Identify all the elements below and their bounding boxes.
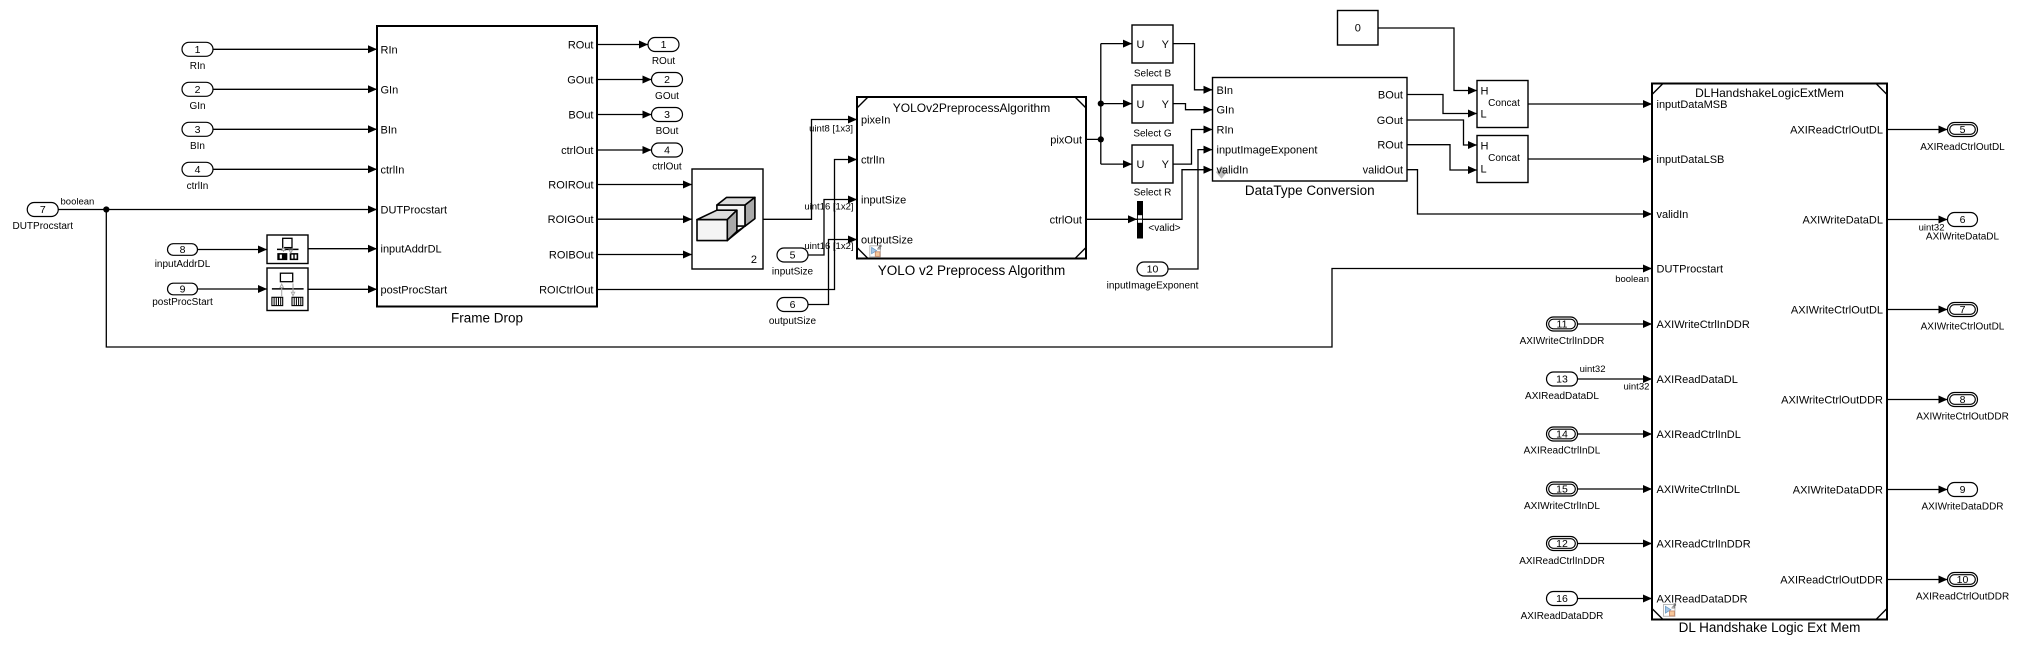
svg-text:8: 8 bbox=[180, 244, 186, 256]
svg-text:uint32: uint32 bbox=[1919, 223, 1945, 234]
svg-text:GIn: GIn bbox=[1217, 105, 1235, 117]
svg-text:ROIBOut: ROIBOut bbox=[549, 250, 594, 262]
svg-text:Y: Y bbox=[1162, 159, 1170, 171]
svg-text:uint16 [1x2]: uint16 [1x2] bbox=[804, 241, 853, 252]
svg-text:uint8 [1x3]: uint8 [1x3] bbox=[809, 124, 853, 135]
svg-text:boolean: boolean bbox=[61, 197, 95, 208]
svg-text:DLHandshakeLogicExtMem: DLHandshakeLogicExtMem bbox=[1695, 86, 1844, 100]
svg-text:4: 4 bbox=[195, 164, 201, 176]
svg-text:DUTProcstart: DUTProcstart bbox=[12, 221, 73, 232]
svg-text:inputAddrDL: inputAddrDL bbox=[381, 244, 442, 256]
svg-text:H: H bbox=[1481, 86, 1489, 98]
svg-text:BIn: BIn bbox=[381, 124, 398, 136]
svg-text:AXIWriteCtrlInDDR: AXIWriteCtrlInDDR bbox=[1657, 319, 1750, 331]
svg-text:AXIWriteDataDDR: AXIWriteDataDDR bbox=[1921, 502, 2003, 513]
svg-text:uint16 [1x2]: uint16 [1x2] bbox=[804, 202, 853, 213]
svg-text:2: 2 bbox=[195, 84, 201, 96]
svg-text:AXIWriteCtrlInDDR: AXIWriteCtrlInDDR bbox=[1520, 336, 1605, 347]
svg-text:3: 3 bbox=[664, 109, 670, 121]
svg-text:5: 5 bbox=[790, 250, 796, 262]
svg-text:U: U bbox=[1137, 39, 1145, 51]
svg-text:boolean: boolean bbox=[1615, 274, 1649, 285]
svg-text:inputAddrDL: inputAddrDL bbox=[155, 259, 211, 270]
svg-text:ctrlIn: ctrlIn bbox=[861, 155, 885, 167]
svg-text:inputSize: inputSize bbox=[861, 195, 906, 207]
svg-text:15: 15 bbox=[1556, 484, 1568, 496]
svg-text:DL Handshake Logic Ext Mem: DL Handshake Logic Ext Mem bbox=[1679, 620, 1861, 635]
svg-text:BOut: BOut bbox=[1378, 90, 1403, 102]
svg-text:validOut: validOut bbox=[1363, 165, 1403, 177]
svg-text:Select G: Select G bbox=[1133, 128, 1172, 139]
svg-text:AXIReadCtrlInDL: AXIReadCtrlInDL bbox=[1657, 429, 1741, 441]
svg-text:Select R: Select R bbox=[1134, 187, 1172, 198]
svg-text:inputImageExponent: inputImageExponent bbox=[1217, 145, 1318, 157]
svg-text:4: 4 bbox=[664, 145, 670, 157]
svg-text:AXIWriteCtrlOutDL: AXIWriteCtrlOutDL bbox=[1921, 322, 2005, 333]
svg-text:pixeIn: pixeIn bbox=[861, 115, 890, 127]
svg-text:inputDataLSB: inputDataLSB bbox=[1657, 154, 1725, 166]
svg-text:outputSize: outputSize bbox=[769, 316, 817, 327]
svg-text:GIn: GIn bbox=[381, 84, 399, 96]
svg-text:AXIReadDataDL: AXIReadDataDL bbox=[1657, 374, 1738, 386]
svg-text:6: 6 bbox=[790, 299, 796, 311]
svg-text:AXIWriteDataDDR: AXIWriteDataDDR bbox=[1793, 485, 1883, 497]
svg-text:3: 3 bbox=[195, 124, 201, 136]
svg-text:6: 6 bbox=[1960, 214, 1966, 226]
svg-text:ROICtrlOut: ROICtrlOut bbox=[539, 285, 593, 297]
svg-text:Concat: Concat bbox=[1488, 153, 1520, 164]
svg-text:L: L bbox=[1481, 164, 1487, 176]
svg-text:GOut: GOut bbox=[1377, 115, 1403, 127]
svg-text:11: 11 bbox=[1557, 319, 1568, 331]
svg-text:ctrlOut: ctrlOut bbox=[561, 145, 593, 157]
svg-text:7: 7 bbox=[40, 204, 46, 216]
svg-text:AXIWriteCtrlInDL: AXIWriteCtrlInDL bbox=[1524, 501, 1600, 512]
svg-text:AXIReadDataDDR: AXIReadDataDDR bbox=[1657, 594, 1748, 606]
svg-text:ROIROut: ROIROut bbox=[548, 180, 593, 192]
svg-text:5: 5 bbox=[1960, 124, 1966, 136]
svg-text:Concat: Concat bbox=[1488, 98, 1520, 109]
svg-text:postProcStart: postProcStart bbox=[381, 284, 448, 296]
svg-text:DUTProcstart: DUTProcstart bbox=[1657, 264, 1724, 276]
svg-text:ctrlIn: ctrlIn bbox=[381, 164, 405, 176]
svg-text:16: 16 bbox=[1556, 593, 1568, 605]
svg-text:ctrlOut: ctrlOut bbox=[1050, 214, 1082, 226]
svg-text:ROut: ROut bbox=[568, 40, 594, 52]
svg-text:ROut: ROut bbox=[1377, 140, 1403, 152]
svg-text:1: 1 bbox=[661, 39, 667, 51]
svg-text:<valid>: <valid> bbox=[1148, 223, 1180, 234]
svg-text:DUTProcstart: DUTProcstart bbox=[381, 205, 448, 217]
svg-text:AXIReadCtrlOutDL: AXIReadCtrlOutDL bbox=[1920, 142, 2005, 153]
svg-text:RIn: RIn bbox=[190, 61, 206, 72]
svg-text:8: 8 bbox=[1960, 394, 1966, 406]
svg-text:GOut: GOut bbox=[655, 91, 679, 102]
svg-text:ROut: ROut bbox=[652, 56, 676, 67]
svg-text:AXIReadCtrlInDDR: AXIReadCtrlInDDR bbox=[1519, 556, 1605, 567]
svg-text:Y: Y bbox=[1162, 99, 1170, 111]
svg-text:inputImageExponent: inputImageExponent bbox=[1107, 281, 1199, 292]
svg-text:GIn: GIn bbox=[189, 101, 205, 112]
svg-text:H: H bbox=[1481, 141, 1489, 153]
svg-text:7: 7 bbox=[1960, 304, 1966, 316]
svg-text:10: 10 bbox=[1147, 264, 1159, 276]
svg-text:9: 9 bbox=[180, 284, 186, 296]
svg-text:uint32: uint32 bbox=[1624, 382, 1650, 393]
svg-text:AXIReadCtrlInDL: AXIReadCtrlInDL bbox=[1524, 446, 1601, 457]
svg-text:Select B: Select B bbox=[1134, 68, 1172, 79]
svg-text:14: 14 bbox=[1556, 429, 1568, 441]
svg-text:inputDataMSB: inputDataMSB bbox=[1657, 99, 1728, 111]
svg-text:AXIWriteCtrlInDL: AXIWriteCtrlInDL bbox=[1657, 484, 1741, 496]
svg-text:AXIReadCtrlOutDDR: AXIReadCtrlOutDDR bbox=[1780, 575, 1883, 587]
svg-text:inputSize: inputSize bbox=[772, 267, 814, 278]
svg-text:AXIReadDataDL: AXIReadDataDL bbox=[1525, 391, 1599, 402]
svg-text:U: U bbox=[1137, 99, 1145, 111]
svg-text:AXIReadDataDDR: AXIReadDataDDR bbox=[1521, 611, 1604, 622]
svg-text:outputSize: outputSize bbox=[861, 235, 913, 247]
svg-text:YOLO v2 Preprocess Algorithm: YOLO v2 Preprocess Algorithm bbox=[878, 263, 1066, 278]
svg-text:RIn: RIn bbox=[1217, 125, 1234, 137]
svg-text:AXIWriteDataDL: AXIWriteDataDL bbox=[1803, 215, 1884, 227]
svg-text:BOut: BOut bbox=[656, 126, 679, 137]
svg-text:BOut: BOut bbox=[568, 110, 593, 122]
svg-text:2: 2 bbox=[664, 74, 670, 86]
svg-text:AXIReadCtrlOutDL: AXIReadCtrlOutDL bbox=[1790, 125, 1883, 137]
svg-text:12: 12 bbox=[1556, 538, 1568, 550]
svg-text:AXIWriteCtrlOutDL: AXIWriteCtrlOutDL bbox=[1791, 305, 1883, 317]
svg-text:L: L bbox=[1481, 109, 1487, 121]
svg-text:1: 1 bbox=[195, 44, 201, 56]
svg-text:uint32: uint32 bbox=[1580, 364, 1606, 375]
svg-text:AXIReadCtrlInDDR: AXIReadCtrlInDDR bbox=[1657, 539, 1751, 551]
svg-text:Frame Drop: Frame Drop bbox=[451, 311, 523, 326]
svg-text:13: 13 bbox=[1556, 374, 1568, 386]
svg-text:2: 2 bbox=[751, 254, 757, 266]
svg-text:BIn: BIn bbox=[1217, 85, 1234, 97]
svg-text:ROIGOut: ROIGOut bbox=[548, 214, 594, 226]
svg-text:9: 9 bbox=[1960, 484, 1966, 496]
svg-text:U: U bbox=[1137, 159, 1145, 171]
svg-text:GOut: GOut bbox=[567, 75, 593, 87]
svg-text:postProcStart: postProcStart bbox=[152, 297, 213, 308]
svg-text:AXIWriteCtrlOutDDR: AXIWriteCtrlOutDDR bbox=[1916, 412, 2009, 423]
svg-text:validIn: validIn bbox=[1217, 165, 1249, 177]
svg-text:YOLOv2PreprocessAlgorithm: YOLOv2PreprocessAlgorithm bbox=[893, 101, 1050, 115]
svg-text:BIn: BIn bbox=[190, 141, 205, 152]
svg-text:10: 10 bbox=[1957, 574, 1969, 586]
svg-text:DataType Conversion: DataType Conversion bbox=[1245, 183, 1375, 198]
svg-text:pixOut: pixOut bbox=[1050, 134, 1082, 146]
svg-text:RIn: RIn bbox=[381, 44, 398, 56]
svg-text:validIn: validIn bbox=[1657, 209, 1689, 221]
svg-text:ctrlIn: ctrlIn bbox=[187, 181, 209, 192]
svg-text:AXIWriteCtrlOutDDR: AXIWriteCtrlOutDDR bbox=[1781, 395, 1883, 407]
svg-text:AXIReadCtrlOutDDR: AXIReadCtrlOutDDR bbox=[1916, 592, 2009, 603]
svg-text:0: 0 bbox=[1355, 23, 1361, 35]
svg-text:ctrlOut: ctrlOut bbox=[652, 162, 682, 173]
svg-text:Y: Y bbox=[1162, 39, 1170, 51]
